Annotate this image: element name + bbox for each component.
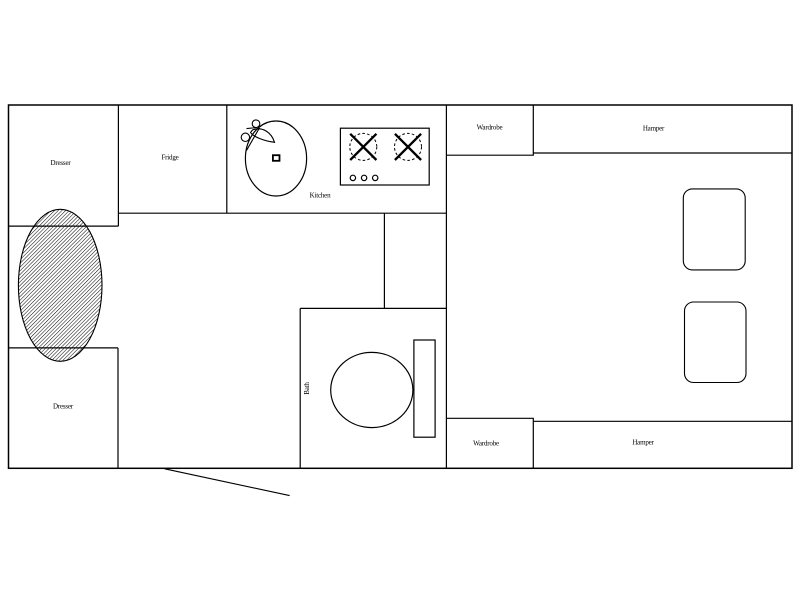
svg-text:Hamper: Hamper — [643, 125, 665, 133]
svg-text:Dresser: Dresser — [51, 159, 72, 167]
svg-text:Wardrobe: Wardrobe — [473, 440, 499, 448]
svg-text:Hamper: Hamper — [632, 439, 654, 447]
svg-text:Fridge: Fridge — [161, 154, 178, 162]
svg-text:Wardrobe: Wardrobe — [477, 124, 503, 132]
svg-text:Dresser: Dresser — [53, 403, 74, 411]
svg-text:Bath: Bath — [303, 382, 311, 395]
svg-text:Kitchen: Kitchen — [310, 192, 331, 200]
